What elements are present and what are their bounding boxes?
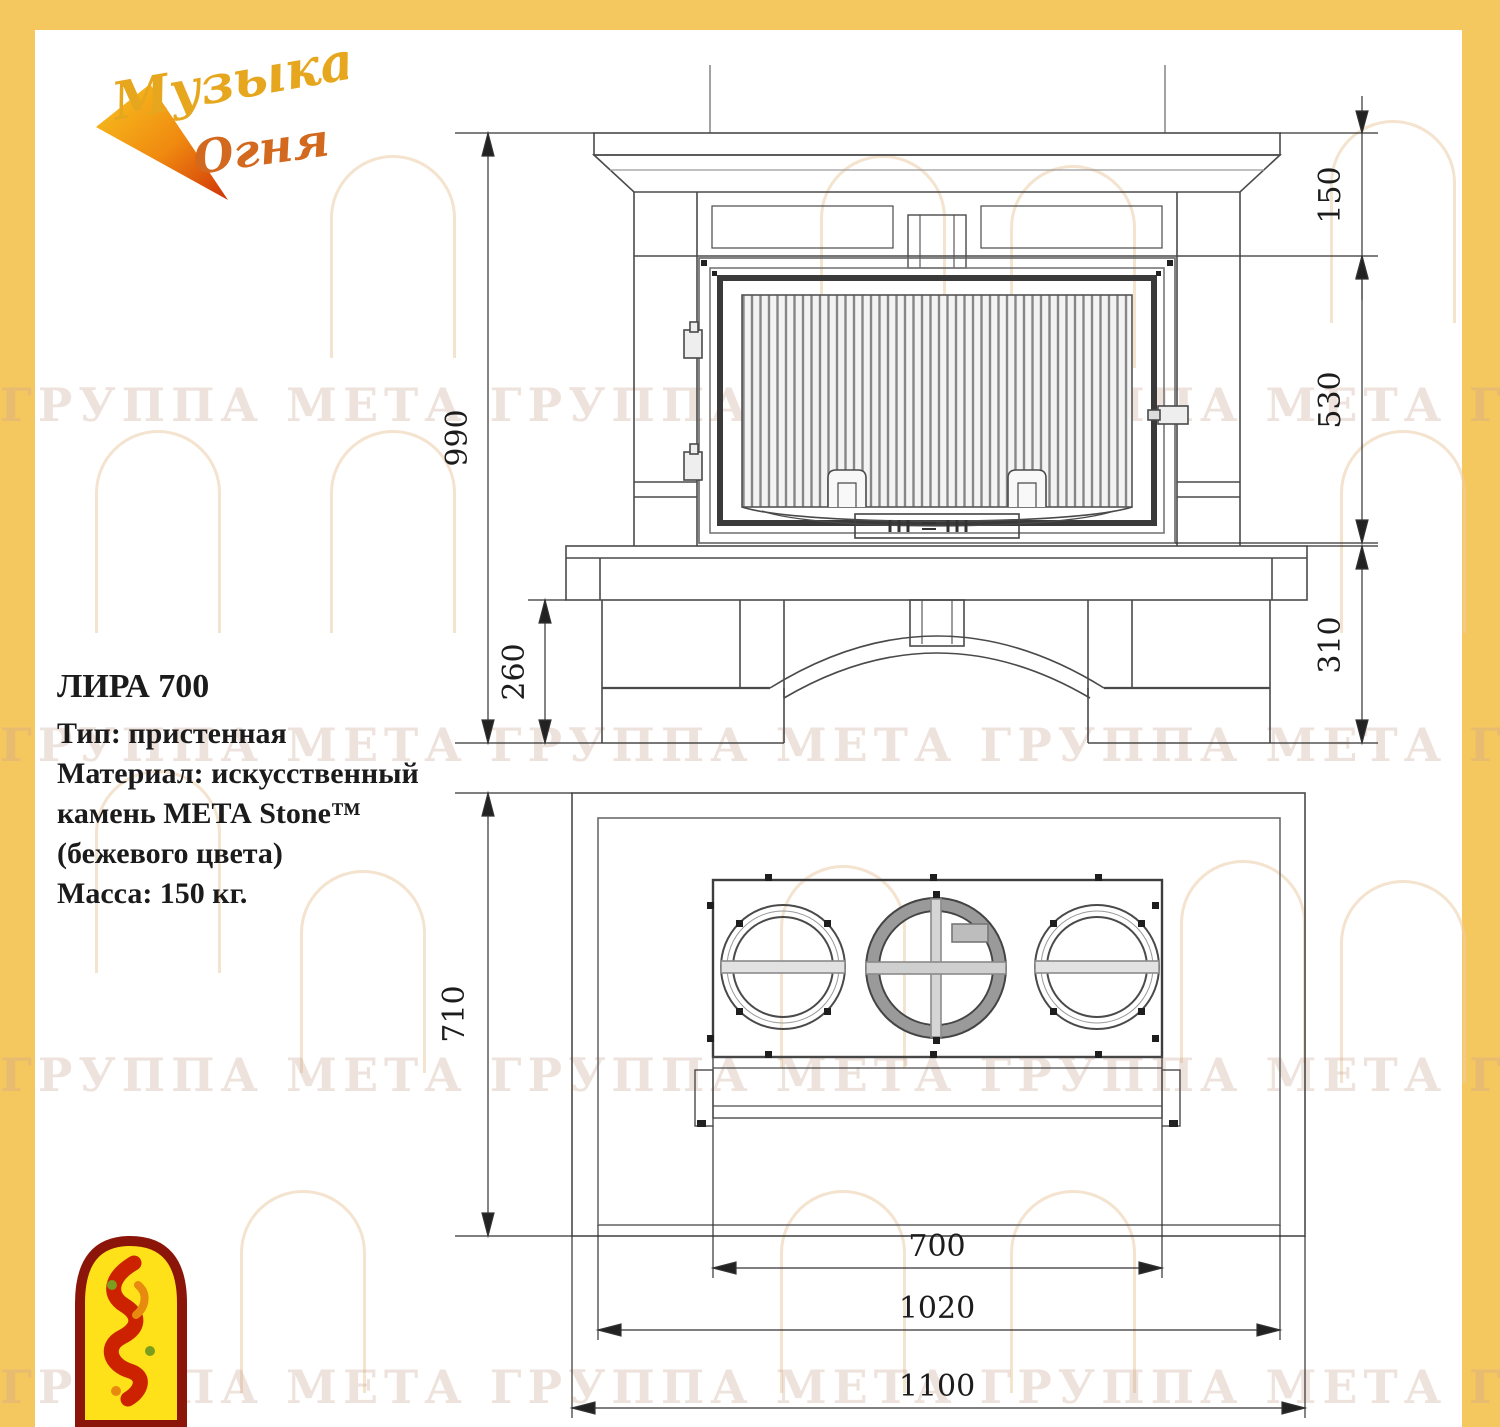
dim-shelf-width: 1020 <box>899 1291 975 1326</box>
plan-view <box>572 793 1305 1236</box>
dim-total-height: 990 <box>440 409 475 466</box>
dim-mantel-height: 150 <box>1313 166 1348 223</box>
dim-firebox-height: 530 <box>1313 371 1348 428</box>
front-view <box>566 65 1307 743</box>
dim-base-height: 260 <box>497 643 532 700</box>
dim-depth: 710 <box>437 985 472 1042</box>
dim-total-width: 1100 <box>899 1369 975 1404</box>
technical-drawing: 990 260 150 530 310 710 700 1020 1100 <box>0 0 1500 1427</box>
dim-plinth-height: 310 <box>1313 616 1348 673</box>
dim-insert-width: 700 <box>908 1229 965 1264</box>
